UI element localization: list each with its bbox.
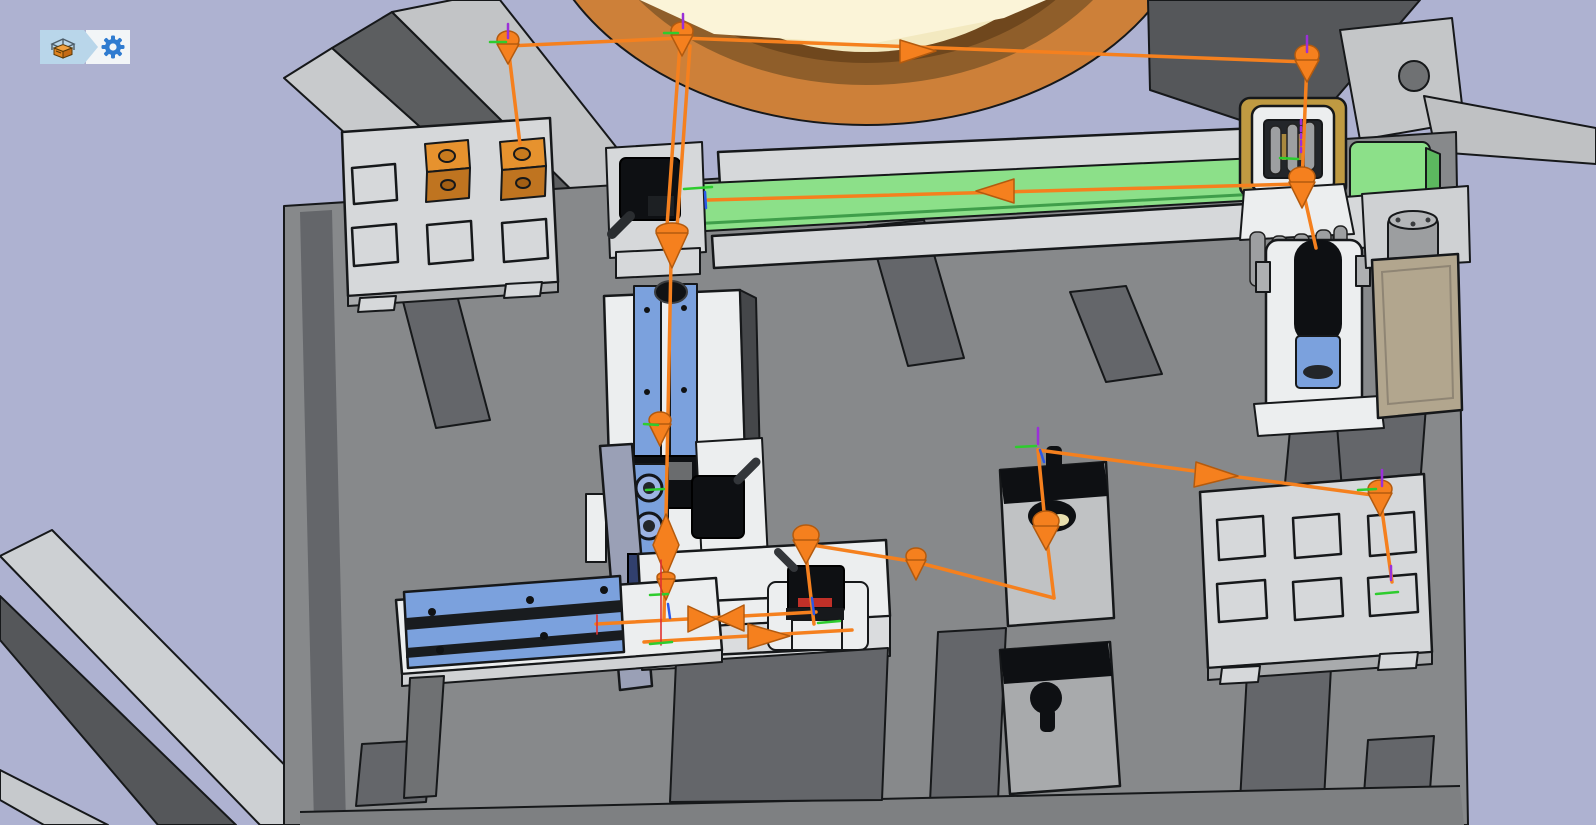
tray-foot bbox=[1220, 666, 1260, 684]
orange-part-cube-2[interactable] bbox=[500, 138, 546, 200]
horizontal-slide[interactable] bbox=[404, 576, 624, 668]
tray-foot bbox=[1378, 652, 1418, 670]
tray-foot bbox=[358, 296, 396, 312]
floating-toolbar bbox=[40, 30, 130, 64]
nest-fixture-knob[interactable] bbox=[1000, 642, 1120, 794]
frame-plate-hole bbox=[1399, 61, 1429, 91]
actuator-blue-slider bbox=[1296, 336, 1340, 388]
cad-scene[interactable] bbox=[0, 0, 1596, 825]
gear-icon bbox=[101, 35, 125, 59]
actuator-cylinder bbox=[1294, 240, 1342, 344]
sensor-lens bbox=[798, 598, 832, 607]
gripper-pins bbox=[1270, 122, 1315, 174]
motor-unit[interactable] bbox=[1362, 186, 1470, 418]
viewport-3d[interactable] bbox=[0, 0, 1596, 825]
nest-fixture-cup[interactable] bbox=[1000, 446, 1114, 626]
output-tray[interactable] bbox=[1200, 474, 1432, 684]
table-leg bbox=[404, 676, 444, 798]
workcell-machine-icon bbox=[50, 34, 76, 60]
orange-part-cube-1[interactable] bbox=[425, 140, 470, 202]
input-tray[interactable] bbox=[342, 118, 558, 312]
tray-foot bbox=[504, 282, 542, 298]
